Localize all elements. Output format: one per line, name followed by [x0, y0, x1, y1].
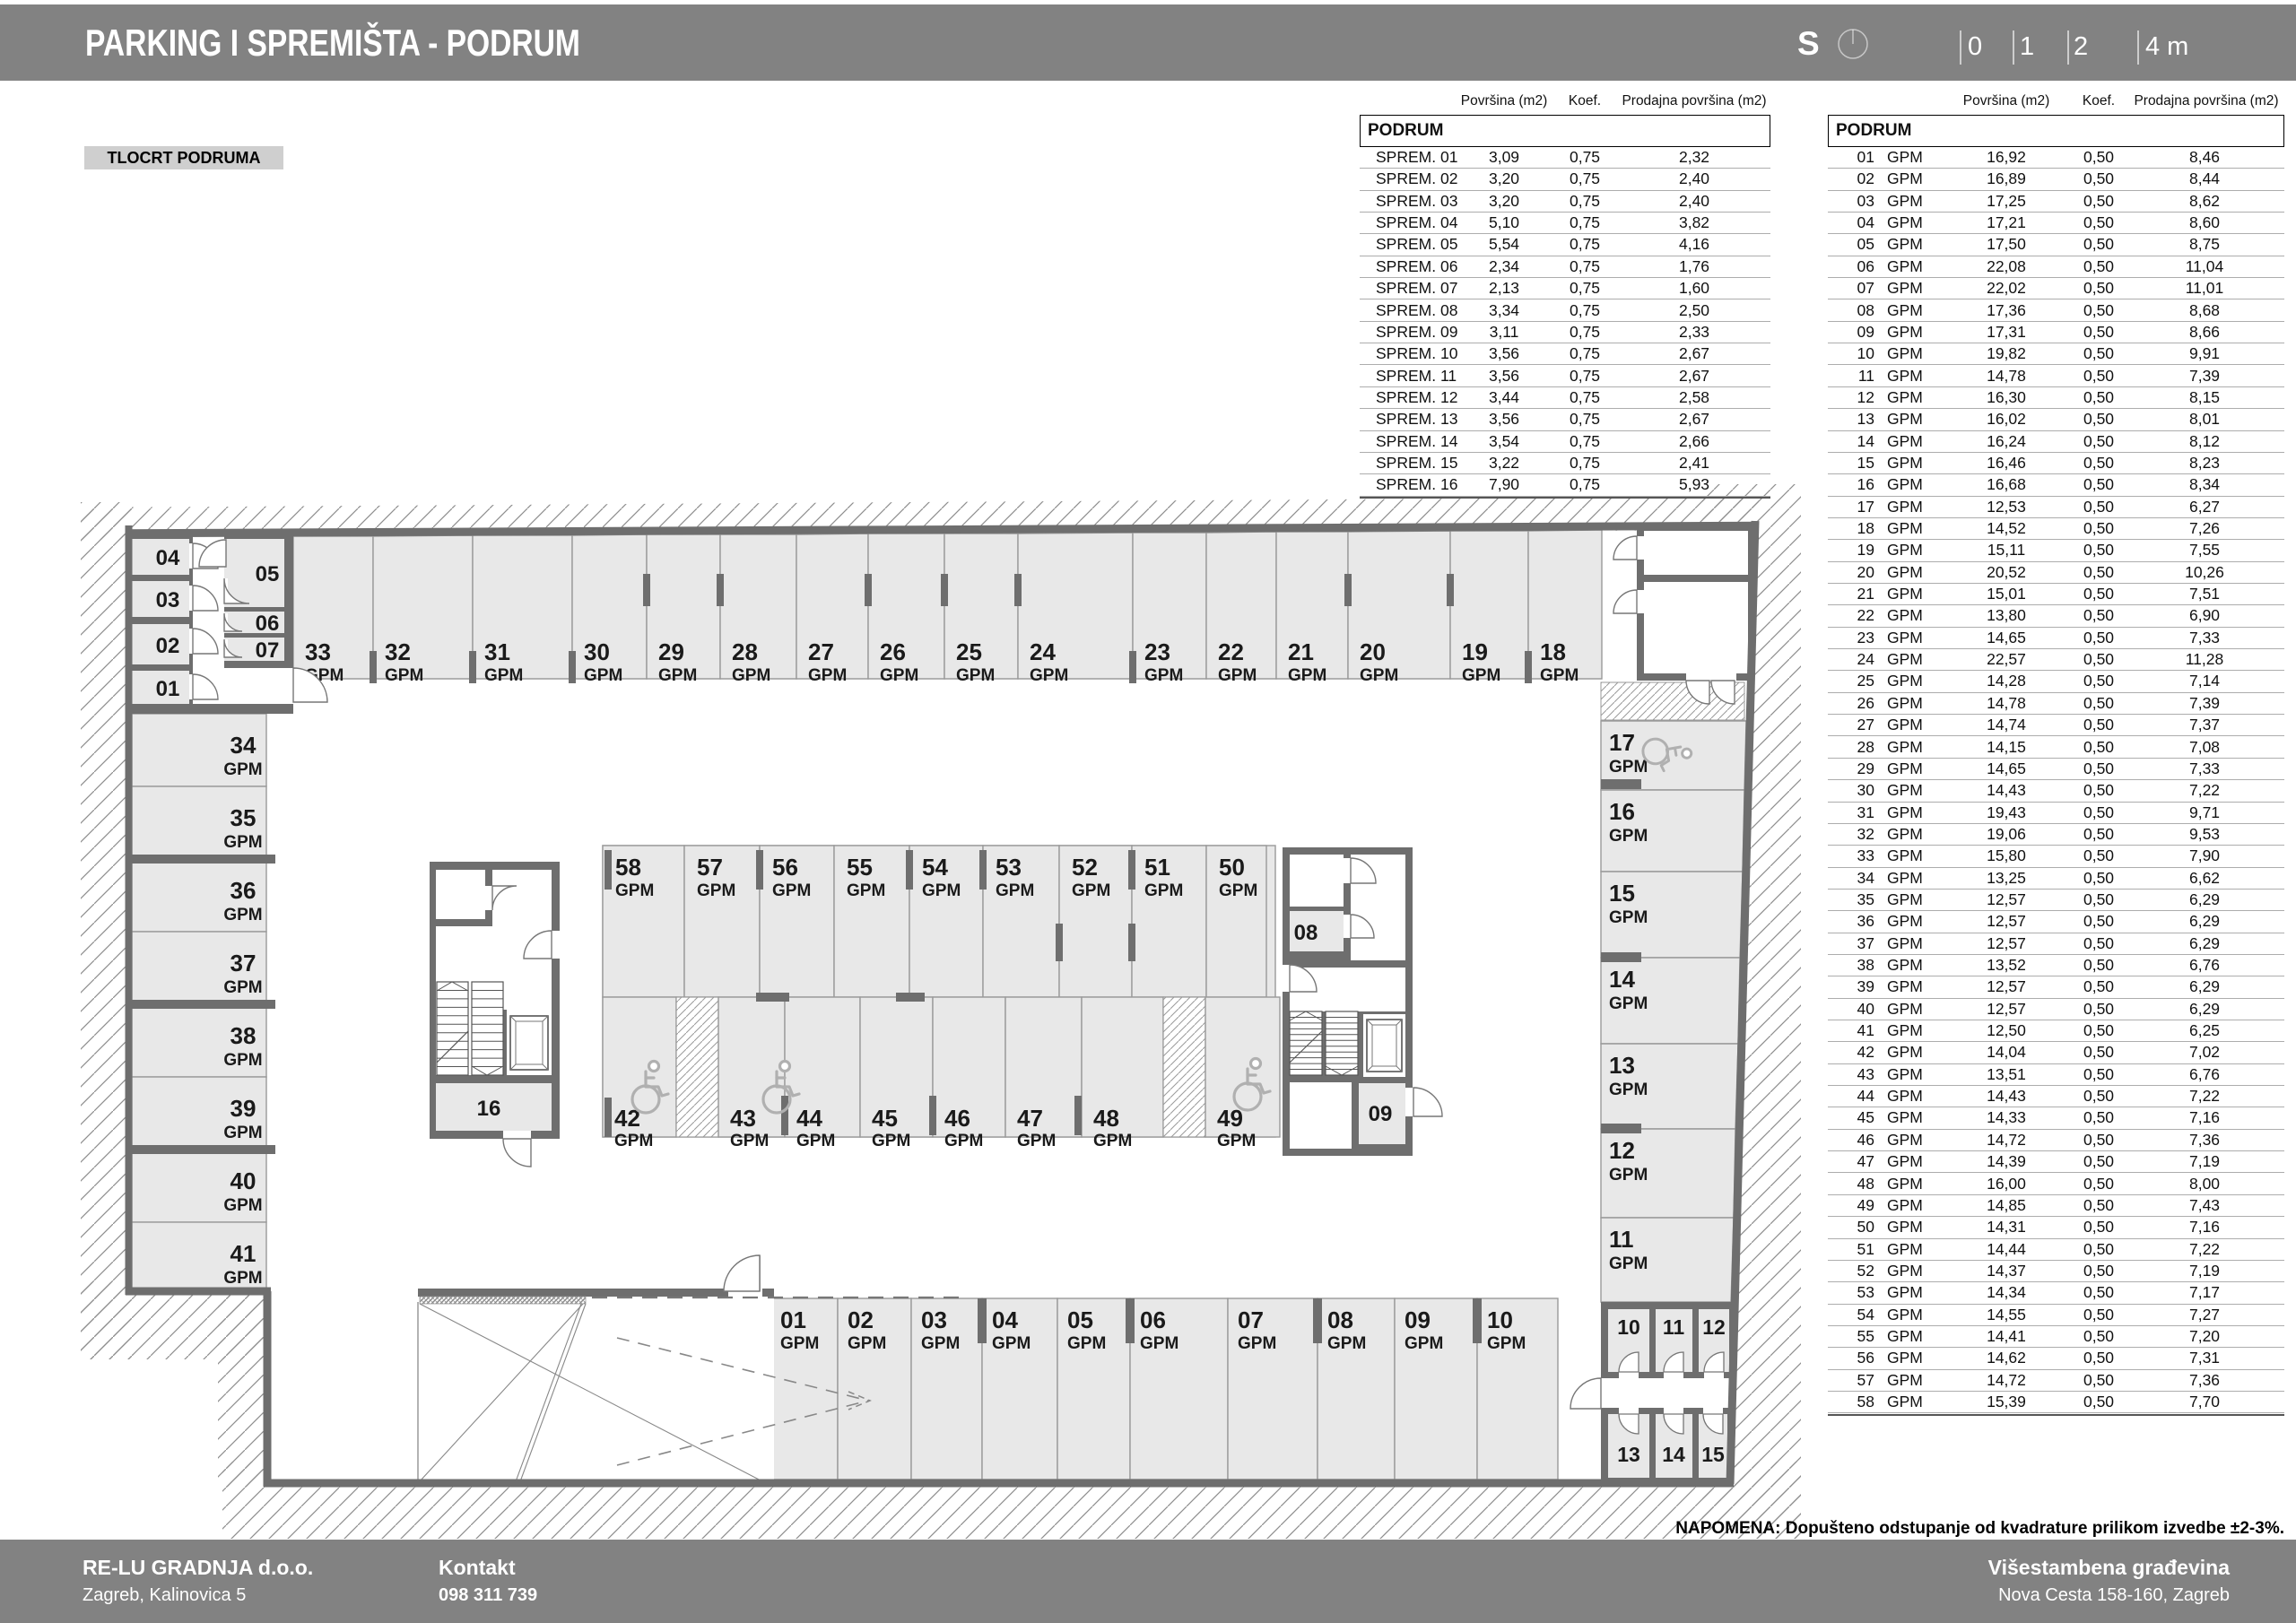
svg-text:GPM: GPM [1217, 1132, 1256, 1150]
svg-text:GPM: GPM [1144, 666, 1183, 685]
svg-text:GPM: GPM [1609, 908, 1648, 927]
svg-text:GPM: GPM [223, 1124, 262, 1142]
svg-text:08: 08 [1327, 1306, 1353, 1333]
svg-text:10: 10 [1487, 1306, 1513, 1333]
svg-text:GPM: GPM [1327, 1334, 1366, 1353]
svg-text:38: 38 [230, 1022, 257, 1049]
svg-text:GPM: GPM [1540, 666, 1578, 685]
svg-text:58: 58 [615, 854, 641, 881]
svg-text:GPM: GPM [772, 881, 811, 900]
svg-text:GPM: GPM [1218, 666, 1257, 685]
svg-text:02: 02 [156, 634, 180, 658]
svg-text:GPM: GPM [1609, 1081, 1648, 1099]
svg-text:GPM: GPM [1405, 1334, 1443, 1353]
svg-text:13: 13 [1609, 1052, 1635, 1079]
svg-text:16: 16 [1609, 798, 1635, 825]
svg-text:GPM: GPM [1140, 1334, 1178, 1353]
svg-text:GPM: GPM [1238, 1334, 1276, 1353]
svg-text:17: 17 [1609, 729, 1635, 756]
svg-text:57: 57 [697, 854, 723, 881]
svg-text:GPM: GPM [1030, 666, 1068, 685]
svg-text:43: 43 [730, 1105, 756, 1132]
svg-text:19: 19 [1462, 638, 1488, 665]
svg-text:GPM: GPM [956, 666, 995, 685]
svg-text:18: 18 [1540, 638, 1566, 665]
svg-text:GPM: GPM [732, 666, 770, 685]
svg-text:GPM: GPM [1609, 827, 1648, 846]
svg-text:39: 39 [230, 1095, 257, 1122]
svg-text:GPM: GPM [872, 1132, 910, 1150]
svg-text:GPM: GPM [697, 881, 735, 900]
svg-text:GPM: GPM [847, 881, 885, 900]
svg-text:20: 20 [1360, 638, 1386, 665]
svg-text:28: 28 [732, 638, 758, 665]
svg-text:GPM: GPM [658, 666, 697, 685]
svg-text:GPM: GPM [730, 1132, 769, 1150]
svg-text:34: 34 [230, 732, 257, 759]
svg-text:GPM: GPM [1609, 994, 1648, 1013]
svg-text:12: 12 [1702, 1315, 1726, 1339]
svg-text:GPM: GPM [848, 1334, 886, 1353]
svg-text:23: 23 [1144, 638, 1170, 665]
svg-text:04: 04 [992, 1306, 1018, 1333]
svg-text:GPM: GPM [1219, 881, 1257, 900]
svg-text:GPM: GPM [223, 978, 262, 997]
svg-text:GPM: GPM [1067, 1334, 1106, 1353]
svg-text:06: 06 [1140, 1306, 1166, 1333]
svg-text:29: 29 [658, 638, 684, 665]
svg-text:GPM: GPM [992, 1334, 1031, 1353]
svg-text:26: 26 [880, 638, 906, 665]
svg-text:33: 33 [305, 638, 331, 665]
svg-text:10: 10 [1617, 1315, 1640, 1339]
svg-text:41: 41 [230, 1240, 257, 1267]
svg-text:GPM: GPM [1144, 881, 1183, 900]
svg-text:GPM: GPM [223, 1196, 262, 1215]
svg-text:35: 35 [230, 804, 257, 831]
svg-text:GPM: GPM [944, 1132, 983, 1150]
svg-text:GPM: GPM [223, 760, 262, 779]
svg-text:GPM: GPM [223, 906, 262, 924]
svg-text:GPM: GPM [484, 666, 523, 685]
svg-text:04: 04 [156, 546, 180, 570]
svg-text:15: 15 [1609, 880, 1635, 907]
svg-text:GPM: GPM [780, 1334, 819, 1353]
svg-text:06: 06 [256, 612, 280, 636]
svg-text:44: 44 [796, 1105, 822, 1132]
svg-text:56: 56 [772, 854, 798, 881]
svg-text:47: 47 [1017, 1105, 1043, 1132]
svg-text:GPM: GPM [1609, 758, 1648, 777]
svg-text:GPM: GPM [921, 1334, 960, 1353]
svg-text:GPM: GPM [614, 1132, 653, 1150]
svg-text:03: 03 [156, 588, 180, 612]
svg-text:22: 22 [1218, 638, 1244, 665]
svg-text:GPM: GPM [1609, 1254, 1648, 1273]
svg-text:14: 14 [1609, 966, 1635, 993]
svg-text:07: 07 [1238, 1306, 1264, 1333]
svg-text:54: 54 [922, 854, 948, 881]
svg-text:36: 36 [230, 877, 257, 904]
svg-text:GPM: GPM [223, 1051, 262, 1070]
svg-text:27: 27 [808, 638, 834, 665]
svg-text:53: 53 [996, 854, 1022, 881]
svg-text:GPM: GPM [1017, 1132, 1056, 1150]
svg-text:GPM: GPM [808, 666, 847, 685]
svg-text:48: 48 [1093, 1105, 1119, 1132]
svg-text:09: 09 [1405, 1306, 1431, 1333]
svg-text:GPM: GPM [1288, 666, 1326, 685]
svg-text:GPM: GPM [385, 666, 423, 685]
svg-text:15: 15 [1701, 1443, 1725, 1466]
svg-text:GPM: GPM [1462, 666, 1500, 685]
svg-text:08: 08 [1294, 921, 1318, 945]
svg-text:GPM: GPM [615, 881, 654, 900]
svg-text:05: 05 [1067, 1306, 1093, 1333]
svg-text:11: 11 [1663, 1315, 1685, 1339]
svg-text:GPM: GPM [1360, 666, 1398, 685]
svg-text:GPM: GPM [223, 833, 262, 852]
svg-text:03: 03 [921, 1306, 947, 1333]
svg-text:13: 13 [1617, 1443, 1640, 1466]
svg-text:GPM: GPM [1093, 1132, 1132, 1150]
svg-text:GPM: GPM [880, 666, 918, 685]
svg-text:51: 51 [1144, 854, 1170, 881]
svg-text:GPM: GPM [922, 881, 961, 900]
svg-text:46: 46 [944, 1105, 970, 1132]
svg-text:31: 31 [484, 638, 510, 665]
svg-text:16: 16 [477, 1097, 501, 1121]
svg-text:37: 37 [230, 950, 257, 976]
svg-text:40: 40 [230, 1167, 257, 1194]
svg-text:25: 25 [956, 638, 982, 665]
svg-text:05: 05 [256, 562, 280, 586]
svg-text:01: 01 [780, 1306, 806, 1333]
svg-text:24: 24 [1030, 638, 1056, 665]
svg-text:GPM: GPM [796, 1132, 835, 1150]
svg-text:GPM: GPM [223, 1269, 262, 1288]
svg-text:14: 14 [1662, 1443, 1685, 1466]
svg-text:52: 52 [1072, 854, 1098, 881]
svg-text:32: 32 [385, 638, 411, 665]
svg-text:12: 12 [1609, 1137, 1635, 1164]
svg-text:09: 09 [1369, 1102, 1393, 1126]
svg-text:GPM: GPM [584, 666, 622, 685]
svg-text:55: 55 [847, 854, 873, 881]
svg-text:02: 02 [848, 1306, 874, 1333]
svg-text:GPM: GPM [1609, 1166, 1648, 1185]
svg-text:07: 07 [256, 638, 280, 663]
svg-text:GPM: GPM [1487, 1334, 1526, 1353]
svg-text:21: 21 [1288, 638, 1314, 665]
svg-text:50: 50 [1219, 854, 1245, 881]
svg-text:GPM: GPM [1072, 881, 1110, 900]
svg-text:01: 01 [156, 677, 180, 701]
svg-text:GPM: GPM [996, 881, 1034, 900]
svg-text:11: 11 [1609, 1226, 1634, 1253]
svg-text:45: 45 [872, 1105, 898, 1132]
svg-text:30: 30 [584, 638, 610, 665]
